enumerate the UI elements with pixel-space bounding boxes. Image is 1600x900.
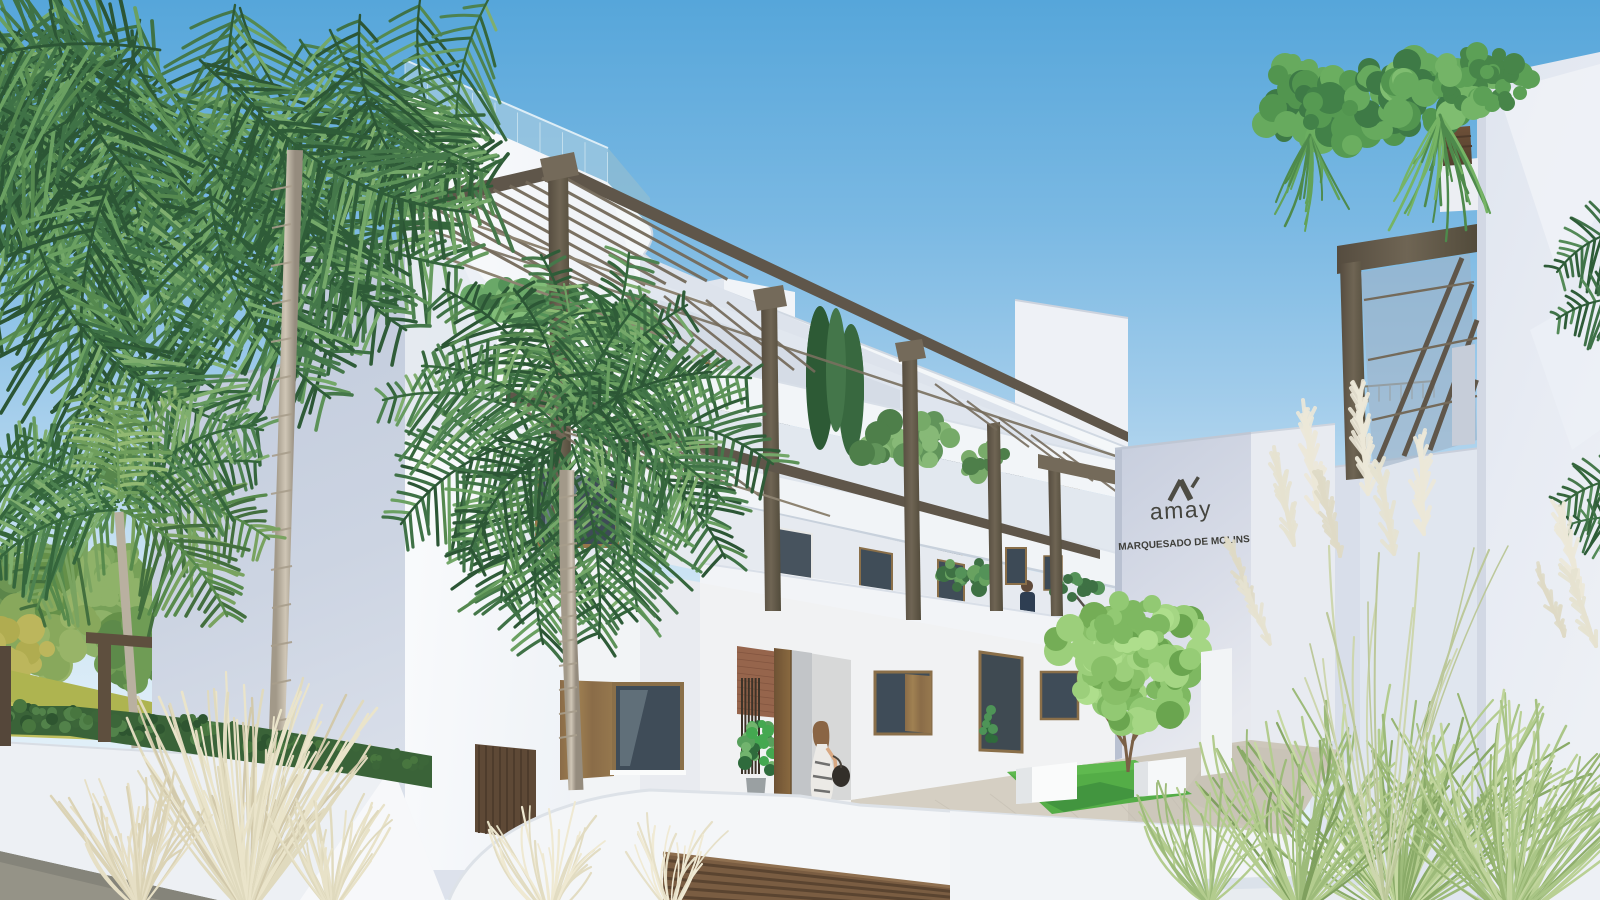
svg-text:amay: amay	[1149, 495, 1213, 524]
